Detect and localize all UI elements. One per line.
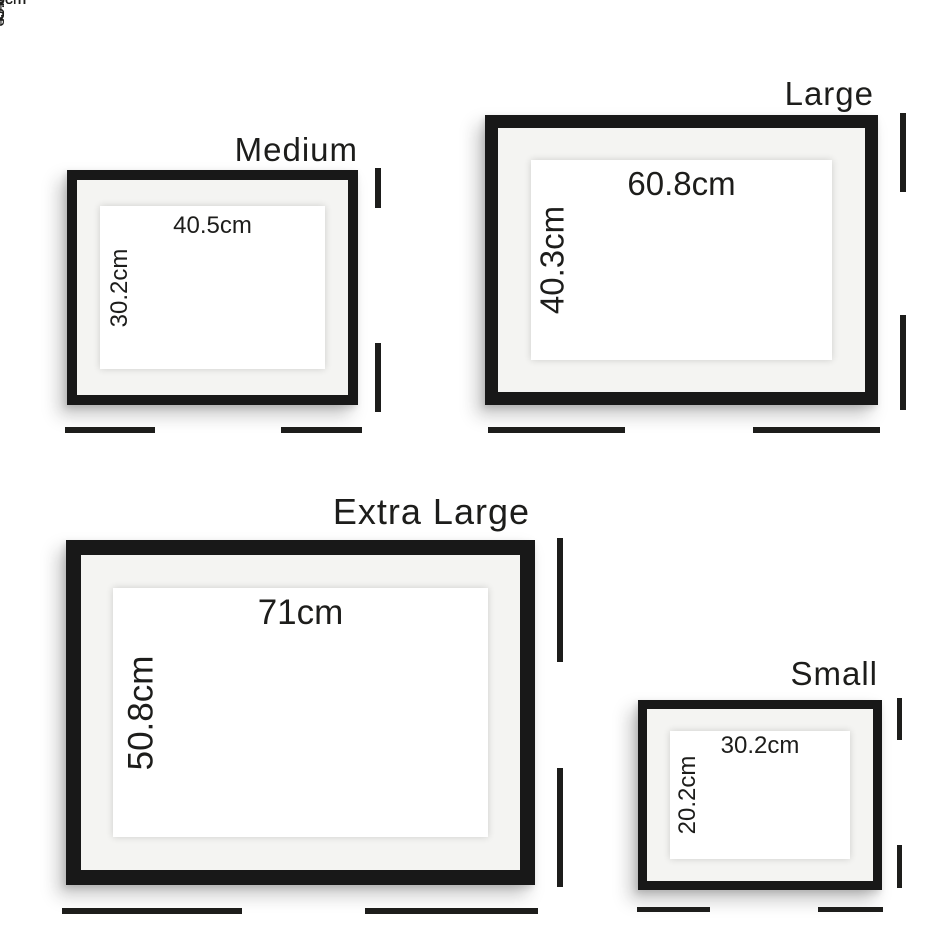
frame-opening-small: 30.2cm 20.2cm	[670, 731, 850, 859]
width-dimension-line-left	[637, 907, 710, 912]
size-title-small: Small	[790, 657, 878, 690]
frame-size-guide: Medium 40.5cm 30.2cm 43.6cm 53.8cm Large…	[0, 0, 950, 950]
size-group-small: Small 30.2cm 20.2cm 33.5cm 43.6cm	[0, 0, 950, 950]
picture-frame-small: 30.2cm 20.2cm	[638, 700, 882, 890]
height-dimension-line-top	[897, 698, 902, 740]
opening-height-label: 20.2cm	[676, 756, 700, 835]
outer-width-label: 43.6cm	[0, 0, 26, 8]
width-dimension-line-right	[818, 907, 883, 912]
opening-width-label: 30.2cm	[670, 734, 850, 758]
height-dimension-line-bottom	[897, 845, 902, 888]
